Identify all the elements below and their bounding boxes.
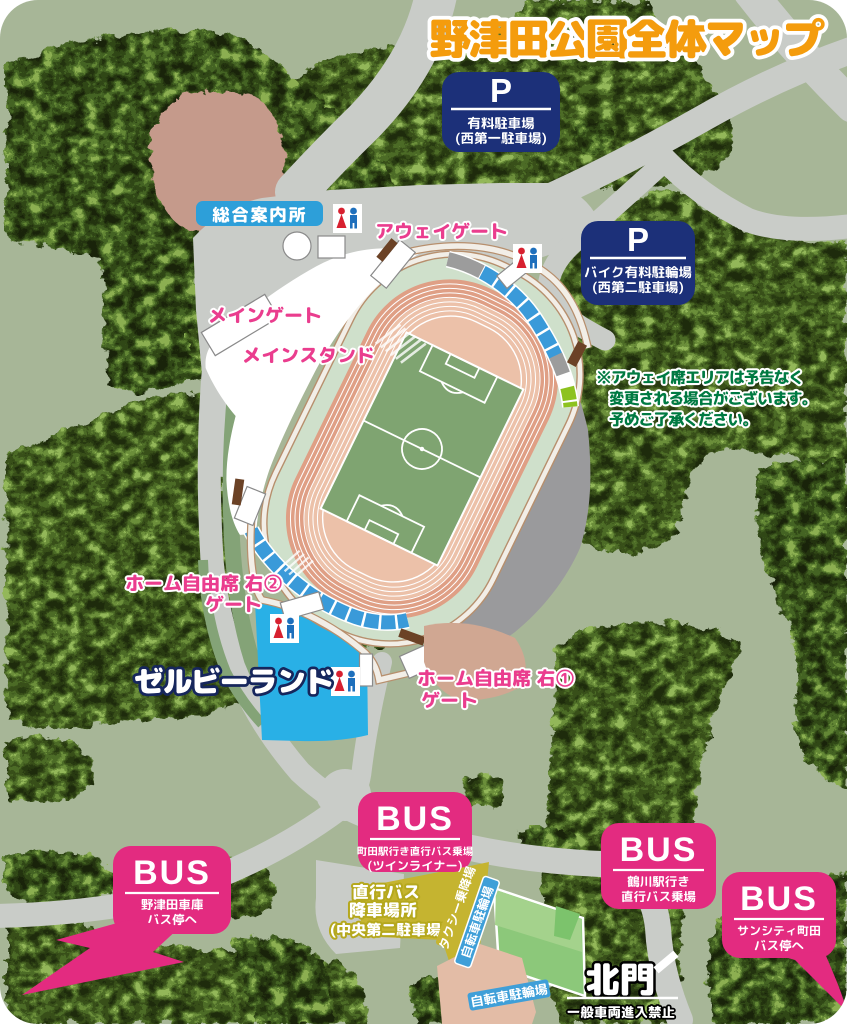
svg-text:P: P: [627, 221, 649, 258]
svg-text:BUS: BUS: [376, 800, 454, 838]
svg-text:BUS: BUS: [620, 831, 698, 869]
svg-text:BUS: BUS: [133, 854, 211, 892]
svg-text:BUS: BUS: [740, 880, 818, 918]
svg-text:P: P: [490, 72, 512, 109]
